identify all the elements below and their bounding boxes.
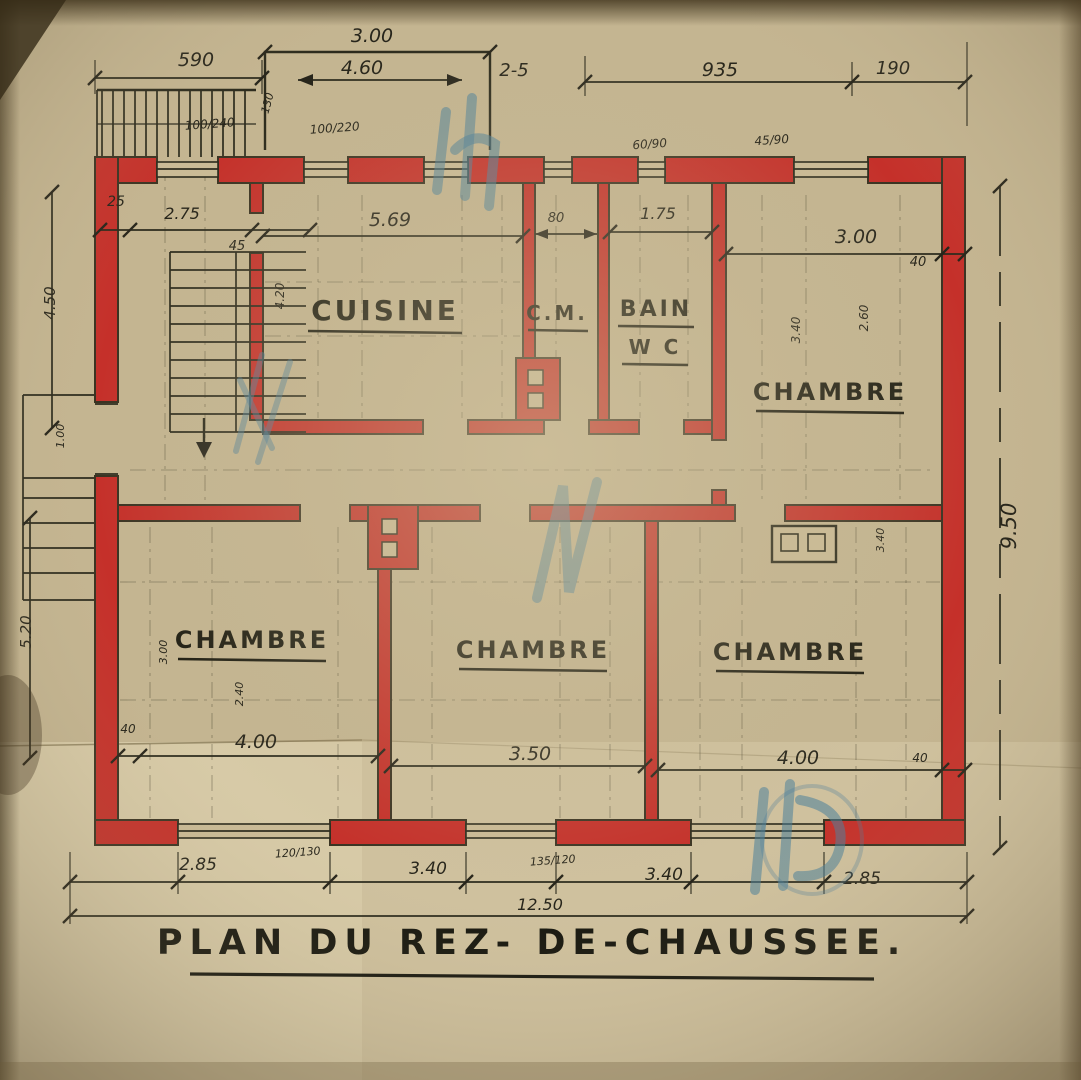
room-label-chambre-ne: CHAMBRE [753, 378, 907, 406]
dim-label: 5.69 [369, 209, 411, 231]
wall [350, 505, 368, 521]
chimney [516, 358, 560, 420]
wall [665, 157, 794, 183]
dim-label: 2-5 [499, 60, 528, 81]
wall [684, 420, 712, 434]
window-size-label: 60/90 [632, 136, 668, 152]
wall [468, 420, 544, 434]
dim-label: 2.60 [857, 304, 871, 331]
pencil-mark [783, 784, 790, 886]
dim-label: 4.00 [235, 731, 277, 753]
dim-label: 3.40 [789, 316, 803, 343]
room-label-cm: C.M. [526, 301, 588, 325]
chimney-flue [382, 519, 397, 534]
wall [468, 157, 544, 183]
dim-label: 40 [912, 751, 928, 765]
page-title: PLAN DU REZ- DE-CHAUSSEE. [157, 923, 907, 963]
window-size-label: 45/90 [754, 132, 790, 148]
dim-label: 3.00 [351, 25, 393, 47]
dim-label: 9.50 [997, 503, 1021, 550]
room-label-cuisine: CUISINE [311, 294, 459, 327]
dim-label: 45 [229, 239, 246, 254]
dim-label: 25 [107, 194, 125, 210]
chimney-flue [528, 370, 543, 385]
dim-label: 935 [702, 59, 738, 81]
room-label-bain: BAIN [620, 297, 692, 322]
dim-label: 3.00 [157, 640, 170, 665]
dim-label: 1.00 [54, 424, 67, 449]
floor-plan-photo: 3.00 590 4.60 2-5 935 190 100/240 100/22… [0, 0, 1081, 1080]
dim-label: 4.60 [341, 57, 383, 79]
chimney [368, 505, 418, 569]
dim-label: 4.00 [777, 747, 819, 769]
dim-label: 4.20 [273, 282, 287, 309]
dim-label: 3.40 [409, 859, 447, 879]
wall [785, 505, 942, 521]
floor-plan-drawing: 3.00 590 4.60 2-5 935 190 100/240 100/22… [0, 0, 1081, 1080]
dim-label: 80 [548, 211, 565, 226]
wall [218, 157, 304, 183]
wall [523, 183, 535, 358]
wall [95, 476, 118, 820]
dim-label: 5.20 [17, 615, 35, 648]
dim-label: 1.75 [640, 204, 676, 223]
dim-label: 40 [120, 722, 136, 736]
dim-label: 3.40 [874, 528, 887, 553]
wall [348, 157, 424, 183]
wall [712, 183, 726, 440]
wall [556, 820, 691, 845]
wall [118, 505, 300, 521]
wall [250, 183, 263, 213]
wall [589, 420, 639, 434]
wall [418, 505, 480, 521]
dim-label: 2.85 [179, 855, 217, 875]
dim-label: 590 [178, 49, 214, 71]
stove-plate [808, 534, 825, 551]
room-label-chambre-s: CHAMBRE [456, 636, 610, 664]
dim-label: 12.50 [517, 895, 563, 914]
room-label-wc: W C [629, 335, 682, 359]
chimney-flue [528, 393, 543, 408]
room-label-chambre-se: CHAMBRE [713, 638, 867, 666]
dim-label: 2.75 [164, 204, 200, 223]
wall [572, 157, 638, 183]
dim-label: 3.00 [835, 226, 877, 248]
paper-light-corner [0, 742, 362, 1080]
dim-label: 3.40 [645, 865, 683, 885]
room-label-chambre-sw: CHAMBRE [175, 626, 329, 654]
dim-label: 2.40 [233, 682, 246, 707]
wall [95, 820, 178, 845]
wall [330, 820, 466, 845]
stove-plate [781, 534, 798, 551]
chimney-flue [382, 542, 397, 557]
dim-label: 4.50 [41, 286, 59, 319]
dim-label: 40 [910, 255, 927, 270]
dim-label: 190 [876, 58, 910, 79]
dim-label: 3.50 [509, 743, 551, 765]
wall [598, 183, 609, 420]
